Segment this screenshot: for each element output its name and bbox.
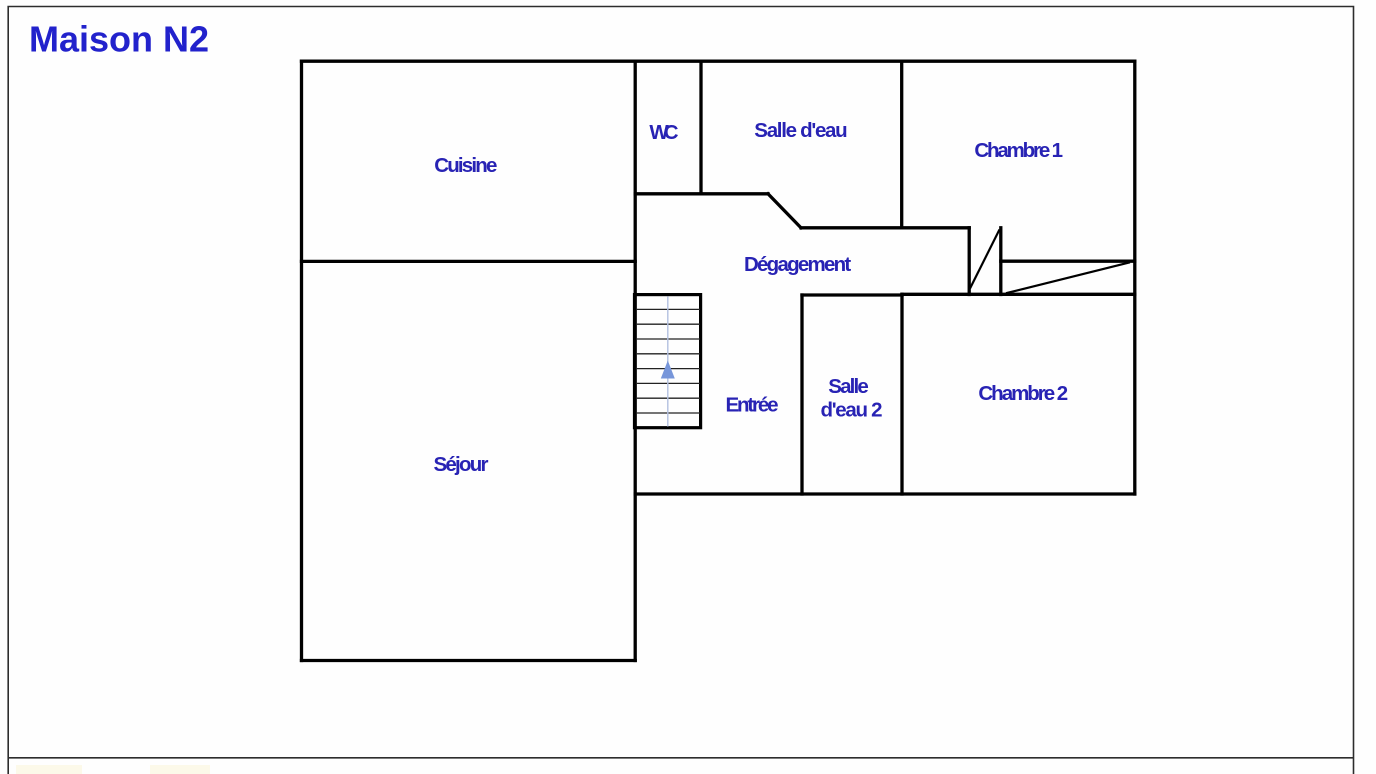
- svg-text:Chambre 2: Chambre 2: [978, 382, 1068, 405]
- svg-text:Séjour: Séjour: [434, 453, 489, 476]
- svg-text:Maison N2: Maison N2: [29, 19, 209, 60]
- svg-text:Dégagement: Dégagement: [744, 253, 851, 276]
- svg-text:Entrée: Entrée: [726, 394, 779, 417]
- svg-text:WC: WC: [649, 121, 678, 144]
- svg-text:Salle: Salle: [828, 375, 869, 398]
- svg-text:d'eau 2: d'eau 2: [821, 399, 883, 422]
- svg-text:Cuisine: Cuisine: [434, 154, 497, 177]
- svg-text:Chambre 1: Chambre 1: [974, 139, 1063, 162]
- svg-text:Salle d'eau: Salle d'eau: [754, 119, 847, 142]
